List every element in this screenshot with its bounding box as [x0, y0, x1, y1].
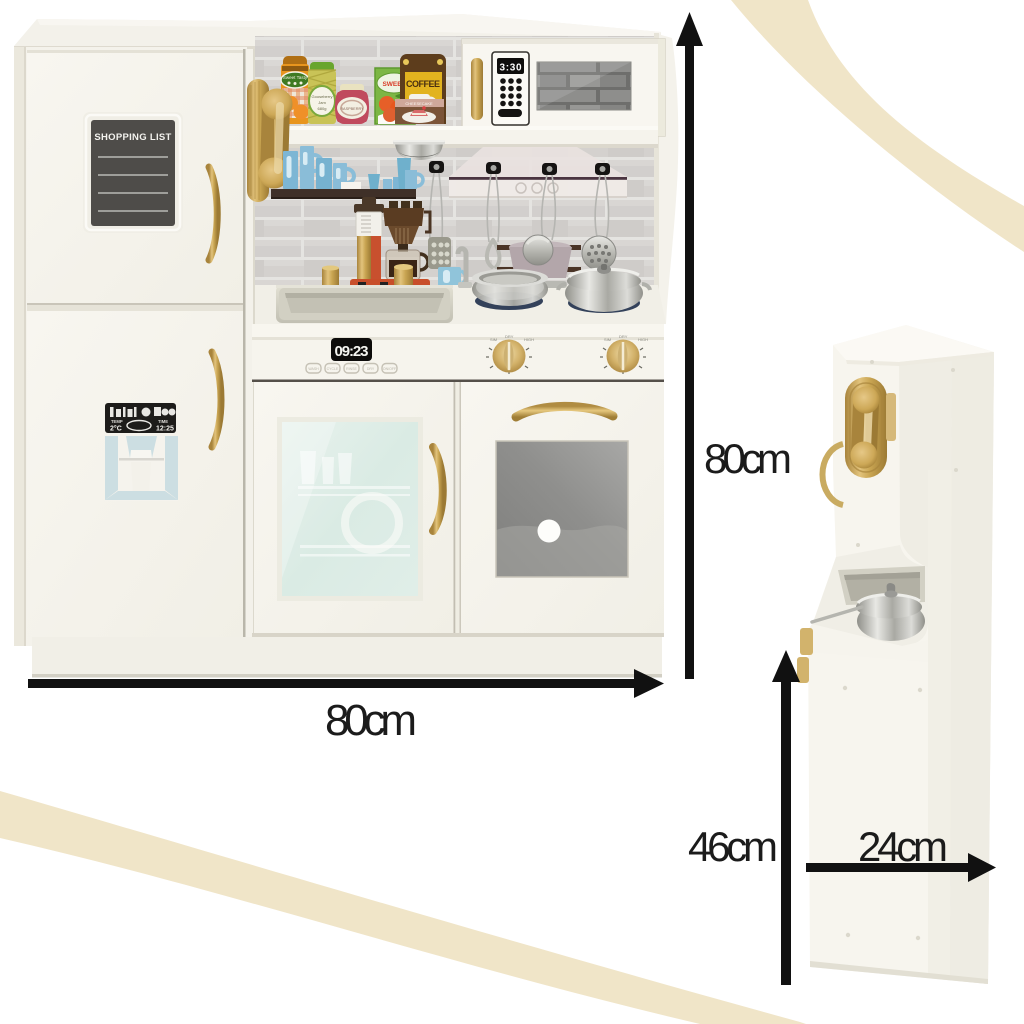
svg-text:DRY: DRY: [505, 334, 514, 339]
svg-text:ON/OFF: ON/OFF: [383, 367, 396, 371]
svg-text:TEMP: TEMP: [111, 419, 123, 424]
svg-text:DRY: DRY: [367, 367, 375, 371]
svg-text:HIGH: HIGH: [524, 337, 534, 342]
svg-text:RINSE: RINSE: [346, 367, 357, 371]
svg-text:Gooseberry: Gooseberry: [312, 94, 333, 99]
svg-text:SHOPPING LIST: SHOPPING LIST: [94, 132, 171, 143]
svg-text:TIME: TIME: [158, 419, 168, 424]
svg-text:Jam: Jam: [318, 100, 326, 105]
svg-text:3:30: 3:30: [500, 63, 522, 74]
svg-text:CYCLE: CYCLE: [327, 367, 339, 371]
svg-text:680g: 680g: [318, 106, 327, 111]
svg-text:WASH: WASH: [308, 367, 319, 371]
svg-text:09:23: 09:23: [335, 343, 369, 360]
svg-text:COFFEE: COFFEE: [406, 79, 440, 89]
svg-text:DRY: DRY: [619, 334, 628, 339]
svg-text:80cm: 80cm: [325, 696, 417, 745]
svg-text:46cm: 46cm: [688, 823, 778, 870]
svg-text:80cm: 80cm: [704, 435, 792, 482]
svg-text:CHEESECAKE: CHEESECAKE: [405, 101, 433, 106]
svg-text:RASPBERRY: RASPBERRY: [340, 107, 364, 111]
svg-text:HIGH: HIGH: [638, 337, 648, 342]
svg-text:2°C: 2°C: [110, 425, 122, 433]
svg-text:24cm: 24cm: [858, 823, 948, 870]
svg-text:12:25: 12:25: [156, 426, 174, 433]
svg-text:Sweet Tasty: Sweet Tasty: [283, 75, 308, 80]
svg-text:SIM: SIM: [604, 337, 611, 342]
svg-text:SIM: SIM: [490, 337, 497, 342]
